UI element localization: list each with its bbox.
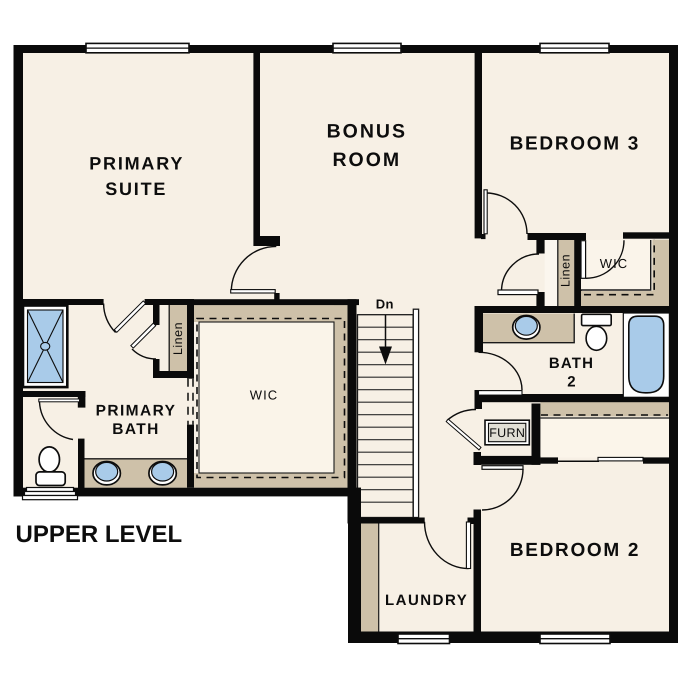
svg-text:PRIMARY: PRIMARY (96, 403, 177, 420)
svg-text:ROOM: ROOM (332, 149, 401, 171)
svg-text:LAUNDRY: LAUNDRY (385, 592, 468, 609)
svg-text:PRIMARY: PRIMARY (89, 154, 184, 174)
svg-text:Dn: Dn (376, 297, 394, 312)
svg-text:2: 2 (567, 373, 577, 390)
svg-text:BEDROOM 3: BEDROOM 3 (510, 134, 640, 155)
svg-text:BEDROOM 2: BEDROOM 2 (510, 540, 640, 561)
svg-text:BATH: BATH (549, 355, 594, 372)
svg-text:WIC: WIC (250, 388, 279, 403)
svg-text:BATH: BATH (112, 421, 160, 438)
svg-text:UPPER LEVEL: UPPER LEVEL (16, 521, 183, 548)
svg-text:SUITE: SUITE (105, 179, 167, 199)
svg-text:WIC: WIC (600, 256, 629, 271)
svg-text:FURN: FURN (489, 426, 525, 440)
svg-text:BONUS: BONUS (327, 121, 407, 143)
svg-text:Linen: Linen (171, 322, 185, 355)
svg-text:Linen: Linen (559, 254, 573, 287)
